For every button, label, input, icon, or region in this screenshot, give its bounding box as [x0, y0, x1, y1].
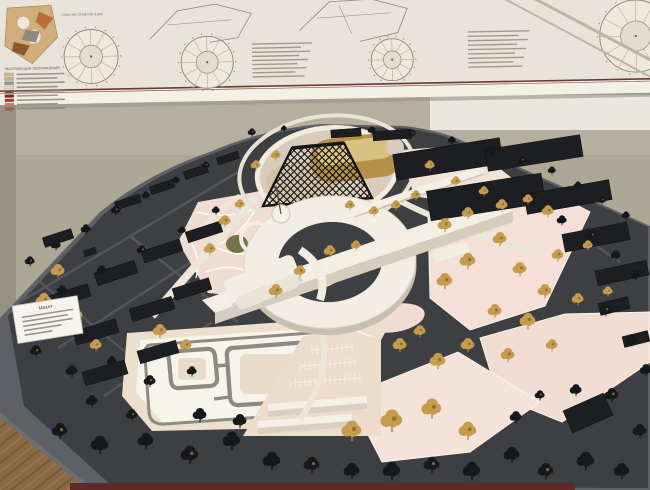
- parking-stall-line: [315, 377, 316, 385]
- parking-stall-line: [300, 362, 301, 370]
- tree-fleck: [484, 190, 486, 192]
- tree-fleck: [522, 159, 524, 161]
- tree-canopy: [614, 254, 619, 259]
- parking-stall-line: [295, 379, 296, 387]
- legend-chip: [5, 107, 14, 110]
- tree-canopy: [283, 128, 286, 131]
- parking-stall-line: [350, 375, 351, 383]
- legend-chip: [4, 73, 13, 76]
- tree-fleck: [356, 244, 358, 246]
- tree-fleck: [548, 209, 550, 211]
- tree-fleck: [330, 249, 332, 251]
- model-photo-canvas: ЭКСПЛИКАЦИЯ ОБОЗНАЧЕНИЙ ПЛАН НА ОТМЕТКЕ …: [0, 0, 650, 490]
- tree-fleck: [502, 203, 504, 205]
- parking-stall-line: [305, 362, 306, 370]
- parking-stall-line: [342, 344, 343, 352]
- parking-stall-line: [355, 358, 356, 366]
- tree-fleck: [588, 244, 590, 246]
- tree-fleck: [468, 343, 471, 346]
- tree-fleck: [528, 318, 531, 321]
- parking-stall-line: [335, 360, 336, 368]
- tree-fleck: [225, 219, 227, 221]
- tree-canopy: [84, 228, 89, 233]
- parking-stall-line: [350, 359, 351, 367]
- tree-canopy: [551, 169, 555, 173]
- legend-chip: [4, 77, 13, 80]
- tree-fleck: [206, 164, 208, 166]
- tree-fleck: [312, 462, 315, 465]
- parking-stall-line: [310, 361, 311, 369]
- tree-fleck: [160, 329, 163, 332]
- parking-stall-line: [325, 377, 326, 385]
- tree-canopy: [634, 274, 639, 279]
- tree-canopy: [469, 468, 477, 476]
- tree-fleck: [96, 343, 98, 345]
- parking-stall-line: [312, 346, 313, 354]
- tree-canopy: [625, 214, 629, 218]
- tree-fleck: [190, 452, 194, 456]
- parking-stall-line: [340, 376, 341, 384]
- tree-fleck: [520, 267, 523, 270]
- tree-fleck: [606, 308, 608, 310]
- tree-fleck: [552, 343, 554, 345]
- tree-canopy: [229, 438, 237, 446]
- tree-canopy: [389, 468, 397, 476]
- tree-canopy: [70, 370, 75, 375]
- parking-stall-line: [345, 359, 346, 367]
- parking-stall-line: [290, 379, 291, 387]
- tree-canopy: [371, 129, 375, 133]
- tree-fleck: [468, 428, 472, 432]
- tree-fleck: [210, 247, 212, 249]
- parking-stall-line: [317, 346, 318, 354]
- parking-stall-line: [330, 376, 331, 384]
- tree-canopy: [215, 209, 219, 213]
- tree-fleck: [392, 417, 396, 421]
- tree-fleck: [608, 290, 610, 292]
- parking-stall-line: [340, 359, 341, 367]
- tree-fleck: [150, 379, 152, 381]
- tree-fleck: [352, 427, 356, 431]
- tree-fleck: [116, 209, 118, 211]
- parking-stall-line: [345, 375, 346, 383]
- tree-canopy: [197, 413, 203, 419]
- tree-fleck: [300, 269, 302, 271]
- tree-canopy: [509, 453, 516, 460]
- tree-canopy: [181, 229, 185, 233]
- tree-fleck: [416, 194, 418, 196]
- tree-canopy: [145, 194, 149, 198]
- tree-canopy: [451, 139, 455, 143]
- tree-canopy: [619, 469, 626, 476]
- tree-fleck: [412, 132, 414, 134]
- tree-canopy: [54, 244, 59, 249]
- tree-canopy: [574, 389, 579, 394]
- tree-fleck: [132, 413, 134, 415]
- tree-fleck: [240, 203, 242, 205]
- tree-canopy: [143, 439, 150, 446]
- tree-fleck: [500, 237, 503, 240]
- tree-fleck: [186, 343, 188, 345]
- tree-canopy: [190, 370, 195, 375]
- tree-fleck: [602, 199, 604, 201]
- tree-canopy: [637, 429, 643, 435]
- tree-fleck: [142, 249, 144, 251]
- tree-canopy: [630, 339, 635, 344]
- tree-fleck: [252, 131, 254, 133]
- tree-fleck: [350, 204, 352, 206]
- legend-chip: [5, 103, 14, 106]
- tree-fleck: [432, 405, 436, 409]
- tree-fleck: [495, 309, 498, 312]
- tree-fleck: [430, 164, 432, 166]
- tree-canopy: [644, 369, 649, 374]
- tree-canopy: [110, 360, 115, 365]
- tree-fleck: [374, 210, 376, 212]
- exhibition-photo: ЭКСПЛИКАЦИЯ ОБОЗНАЧЕНИЙ ПЛАН НА ОТМЕТКЕ …: [0, 0, 650, 490]
- tree-fleck: [528, 198, 530, 200]
- tree-fleck: [468, 258, 471, 261]
- tree-fleck: [545, 289, 548, 292]
- tree-fleck: [508, 353, 511, 356]
- tree-fleck: [546, 468, 549, 471]
- tree-fleck: [445, 223, 448, 226]
- tree-fleck: [420, 329, 422, 331]
- tree-canopy: [237, 419, 243, 425]
- tree-fleck: [432, 462, 435, 465]
- plan-poster: ЭКСПЛИКАЦИЯ ОБОЗНАЧЕНИЙ ПЛАН НА ОТМЕТКЕ …: [0, 0, 650, 111]
- parking-stall-line: [355, 374, 356, 382]
- tree-canopy: [583, 458, 591, 466]
- plan-caption: ПЛАН НА ОТМЕТКЕ 0,000: [61, 12, 103, 17]
- tree-canopy: [97, 442, 105, 450]
- parking-stall-line: [337, 344, 338, 352]
- legend-chip: [5, 94, 14, 97]
- parking-stall-line: [360, 374, 361, 382]
- table-front-strip: [70, 483, 575, 490]
- tree-fleck: [400, 343, 403, 346]
- tree-canopy: [100, 269, 105, 274]
- tree-fleck: [468, 211, 470, 213]
- tree-fleck: [30, 260, 32, 262]
- legend-chip: [5, 90, 14, 93]
- tree-canopy: [269, 458, 277, 466]
- tree-fleck: [592, 234, 594, 236]
- tree-canopy: [349, 469, 356, 476]
- tree-fleck: [256, 164, 258, 166]
- tree-fleck: [36, 349, 38, 351]
- tree-fleck: [438, 358, 441, 361]
- parking-stall-line: [305, 378, 306, 386]
- tree-fleck: [276, 289, 279, 292]
- parking-stall-line: [300, 378, 301, 386]
- parking-stall-line: [330, 360, 331, 368]
- tree-canopy: [514, 416, 519, 421]
- tree-canopy: [560, 219, 565, 224]
- tree-canopy: [60, 289, 65, 294]
- parking-stall-line: [332, 345, 333, 353]
- legend-chip: [5, 86, 14, 89]
- parking-stall-line: [352, 343, 353, 351]
- legend-chip: [5, 82, 14, 85]
- tree-fleck: [58, 269, 61, 272]
- tree-fleck: [276, 154, 278, 156]
- tree-fleck: [558, 253, 560, 255]
- tree-fleck: [540, 394, 542, 396]
- tree-canopy: [577, 184, 581, 188]
- tree-fleck: [612, 393, 615, 396]
- tree-fleck: [396, 204, 398, 206]
- tree-canopy: [491, 149, 495, 153]
- parking-stall-line: [315, 361, 316, 369]
- legend-chip: [5, 99, 14, 102]
- parking-stall-line: [335, 376, 336, 384]
- tree-fleck: [456, 180, 458, 182]
- tree-fleck: [445, 278, 448, 281]
- tree-canopy: [175, 179, 179, 183]
- tree-fleck: [578, 297, 580, 299]
- tree-canopy: [90, 400, 95, 405]
- parking-stall-line: [310, 378, 311, 386]
- parking-stall-line: [347, 344, 348, 352]
- tree-fleck: [60, 428, 63, 431]
